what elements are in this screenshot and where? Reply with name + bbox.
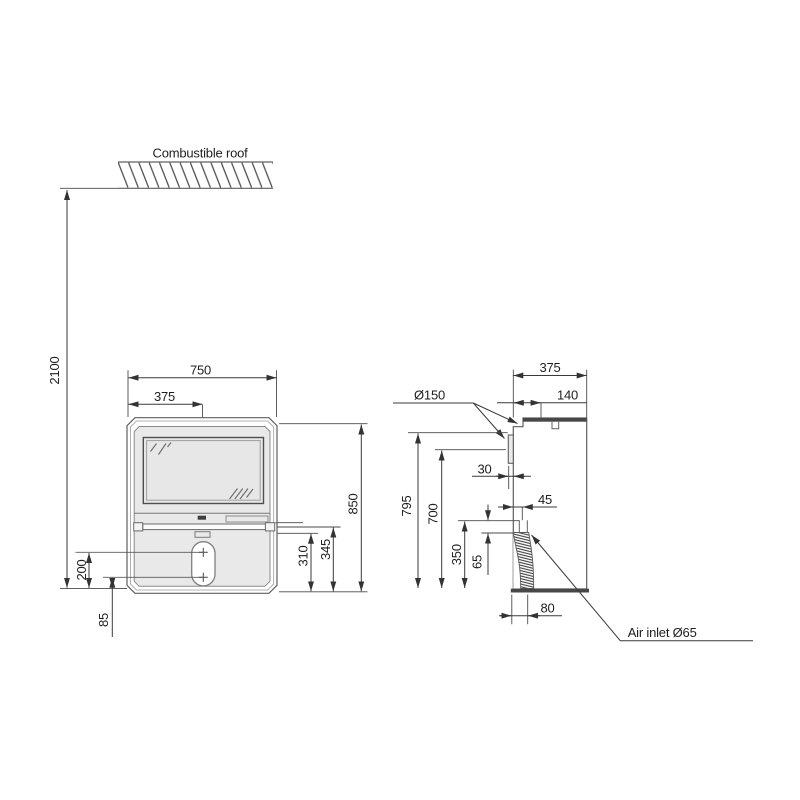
dim-height-850: 850 xyxy=(279,424,368,592)
rear-flue-collar xyxy=(508,435,513,463)
installation-diagram-page: Combustible roof 2100 xyxy=(0,0,800,800)
installation-diagram: Combustible roof 2100 xyxy=(0,0,800,800)
ash-ledge xyxy=(143,524,266,530)
inlet-floor-value: 80 xyxy=(540,601,554,616)
top-flue-hole-mark xyxy=(552,422,559,429)
air-inlet-label: Air inlet Ø65 xyxy=(628,625,697,640)
flue-diameter-label: Ø150 xyxy=(414,388,445,403)
flue-center-value: 140 xyxy=(557,387,578,402)
width-value: 750 xyxy=(190,362,211,377)
dim-inlet-floor-80: 80 xyxy=(499,595,562,625)
inlet-offset-value: 45 xyxy=(538,492,552,507)
front-view xyxy=(76,418,278,594)
half-width-value: 375 xyxy=(154,389,175,404)
clearance-dimension: 2100 xyxy=(47,188,127,588)
ledge-cap-right xyxy=(265,523,274,531)
roof-hatch-band xyxy=(118,162,273,188)
height-value: 850 xyxy=(346,493,361,514)
side-view-dimensions: 375 Ø150 140 30 795 xyxy=(393,360,753,641)
inlet-height-value: 350 xyxy=(449,544,464,565)
flue-diameter-callout: Ø150 xyxy=(393,388,518,439)
dim-inlet-height-350: 350 xyxy=(449,521,519,588)
dim-lower-knob-85: 85 xyxy=(96,578,112,637)
dim-inlet-span-65: 65 xyxy=(470,505,514,576)
dim-half-width-375: 375 xyxy=(129,389,203,417)
dim-inlet-offset-45: 45 xyxy=(498,492,557,520)
shelf-bottom-value: 310 xyxy=(296,545,311,566)
rear-offset-value: 30 xyxy=(477,462,491,477)
dim-upper-knob-200: 200 xyxy=(74,553,89,588)
rear-top-value: 795 xyxy=(399,495,414,516)
roof-label: Combustible roof xyxy=(153,146,249,161)
dim-rear-offset-30: 30 xyxy=(472,462,531,490)
depth-value: 375 xyxy=(539,360,560,375)
lower-knob-value: 85 xyxy=(96,613,111,627)
clearance-height-value: 2100 xyxy=(47,356,62,384)
ledge-cap-left xyxy=(134,523,143,531)
dim-shelf-bottom-310: 310 xyxy=(278,533,319,591)
latch-tab xyxy=(195,532,210,538)
air-inlet-callout: Air inlet Ø65 xyxy=(532,535,754,641)
top-plate xyxy=(523,418,587,422)
dim-rear-center-700: 700 xyxy=(426,450,507,588)
air-control-lever xyxy=(198,516,206,520)
combustible-roof: Combustible roof xyxy=(118,146,273,189)
shelf-top-value: 345 xyxy=(318,539,333,560)
rear-center-value: 700 xyxy=(426,503,441,524)
stove-glass xyxy=(143,438,263,504)
inlet-span-value: 65 xyxy=(470,555,485,569)
upper-knob-value: 200 xyxy=(74,559,89,580)
dim-flue-center-140: 140 xyxy=(497,387,587,417)
